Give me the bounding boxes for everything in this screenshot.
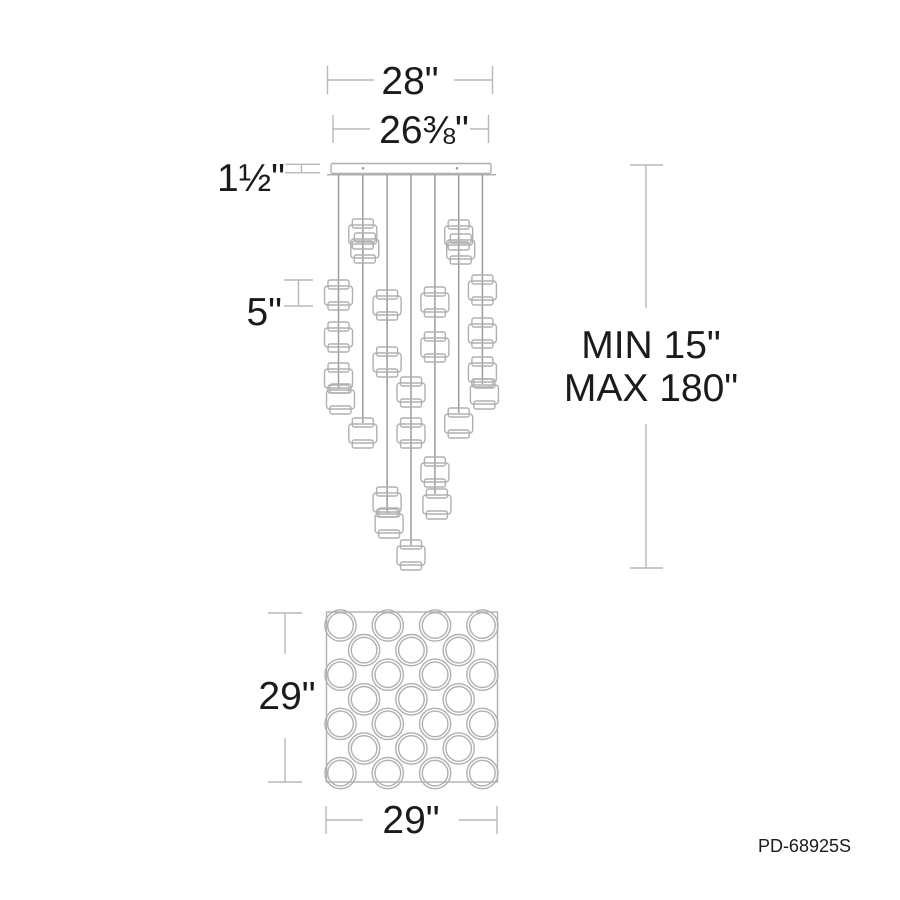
shade-outer-ring — [372, 610, 403, 641]
drum-bottom-rim — [448, 430, 469, 438]
shade-inner-ring — [351, 637, 377, 663]
shade-outer-ring — [467, 659, 498, 690]
shade-outer-ring — [420, 708, 451, 739]
shade-inner-ring — [422, 662, 448, 688]
shade-top-circle — [467, 708, 498, 739]
shade-outer-ring — [325, 758, 356, 789]
drum-shade — [470, 379, 498, 409]
shade-top-circle — [349, 684, 380, 715]
shade-inner-ring — [422, 711, 448, 737]
shade-top-circle — [325, 659, 356, 690]
shade-outer-ring — [325, 659, 356, 690]
shade-inner-ring — [446, 637, 472, 663]
dimension-lines — [268, 66, 663, 834]
shade-inner-ring — [375, 662, 401, 688]
drum-bottom-rim — [426, 511, 447, 519]
shade-top-circle — [467, 659, 498, 690]
overall-width-dimension-label: 28" — [381, 60, 438, 103]
shade-inner-ring — [328, 662, 354, 688]
shade-height-dimension-label: 5" — [246, 291, 282, 334]
shade-top-circle — [349, 635, 380, 666]
pendant-side-view — [325, 164, 499, 571]
drum-bottom-rim — [354, 255, 375, 263]
shade-outer-ring — [349, 733, 380, 764]
shade-top-circle — [443, 635, 474, 666]
spec-sheet-page: 28" 26⅜" 1½" 5" MIN 15" MAX 180" 29" 29"… — [0, 0, 900, 900]
shade-outer-ring — [443, 684, 474, 715]
shade-inner-ring — [351, 687, 377, 713]
shade-inner-ring — [399, 637, 425, 663]
canopy-width-dimension-label: 26⅜" — [379, 109, 469, 152]
shade-top-circle — [325, 610, 356, 641]
shade-top-circle — [396, 733, 427, 764]
canopy-top-width-dimension-label: 29" — [382, 799, 439, 842]
canopy-height-dimension-label: 1½" — [217, 157, 285, 200]
drum-bottom-rim — [401, 562, 422, 570]
drum-shade — [447, 234, 475, 264]
shade-outer-ring — [467, 758, 498, 789]
shade-top-circle — [443, 684, 474, 715]
shade-inner-ring — [470, 662, 496, 688]
shade-outer-ring — [325, 708, 356, 739]
canopy-top-view — [325, 610, 498, 789]
shade-inner-ring — [351, 736, 377, 762]
shade-top-circle — [372, 659, 403, 690]
canopy-bar — [331, 164, 491, 174]
drum-top-rim — [426, 489, 447, 498]
shade-inner-ring — [375, 711, 401, 737]
shade-top-circle — [443, 733, 474, 764]
drum-bottom-rim — [450, 256, 471, 264]
shade-outer-ring — [420, 610, 451, 641]
part-number-label: PD-68925S — [758, 836, 851, 856]
drum-bottom-rim — [330, 406, 351, 414]
drum-bottom-rim — [352, 440, 373, 448]
shade-outer-ring — [372, 758, 403, 789]
shade-top-circle — [420, 708, 451, 739]
shade-top-circle — [372, 708, 403, 739]
shade-inner-ring — [470, 613, 496, 639]
shade-top-circle — [420, 659, 451, 690]
shade-outer-ring — [372, 708, 403, 739]
canopy-depth-dimension-label: 29" — [258, 675, 315, 718]
shade-outer-ring — [396, 684, 427, 715]
shade-inner-ring — [328, 711, 354, 737]
shade-top-circle — [396, 635, 427, 666]
suspension-max-label: MAX 180" — [564, 367, 738, 410]
drum-shade — [423, 489, 451, 519]
shade-top-circle — [325, 708, 356, 739]
shade-top-circle — [396, 684, 427, 715]
shade-outer-ring — [467, 610, 498, 641]
shade-outer-ring — [420, 758, 451, 789]
shade-outer-ring — [420, 659, 451, 690]
dim-5 — [284, 280, 313, 306]
shade-outer-ring — [443, 733, 474, 764]
shade-outer-ring — [325, 610, 356, 641]
shade-top-circle — [420, 758, 451, 789]
shade-outer-ring — [396, 635, 427, 666]
drum-bottom-rim — [474, 401, 495, 409]
shade-inner-ring — [399, 736, 425, 762]
shade-inner-ring — [446, 687, 472, 713]
shade-inner-ring — [446, 736, 472, 762]
shade-top-circle — [349, 733, 380, 764]
dim-1-5 — [285, 164, 320, 173]
shade-outer-ring — [443, 635, 474, 666]
shade-top-circle — [420, 610, 451, 641]
shade-top-circle — [372, 758, 403, 789]
drum-shade — [351, 233, 379, 263]
shade-outer-ring — [349, 684, 380, 715]
shade-inner-ring — [399, 687, 425, 713]
shade-outer-ring — [372, 659, 403, 690]
shade-top-circle — [372, 610, 403, 641]
shade-inner-ring — [470, 711, 496, 737]
spec-diagram: 28" 26⅜" 1½" 5" MIN 15" MAX 180" 29" 29"… — [0, 0, 900, 900]
shade-outer-ring — [467, 708, 498, 739]
shade-outer-ring — [396, 733, 427, 764]
canopy-screw — [456, 167, 459, 170]
shade-top-circle — [467, 610, 498, 641]
drum-bottom-rim — [379, 530, 400, 538]
shade-inner-ring — [328, 613, 354, 639]
shade-top-circle — [325, 758, 356, 789]
shade-inner-ring — [375, 613, 401, 639]
shade-inner-ring — [422, 613, 448, 639]
shade-outer-ring — [349, 635, 380, 666]
suspension-min-label: MIN 15" — [581, 324, 721, 367]
shade-top-circle — [467, 758, 498, 789]
canopy-screw — [362, 167, 365, 170]
